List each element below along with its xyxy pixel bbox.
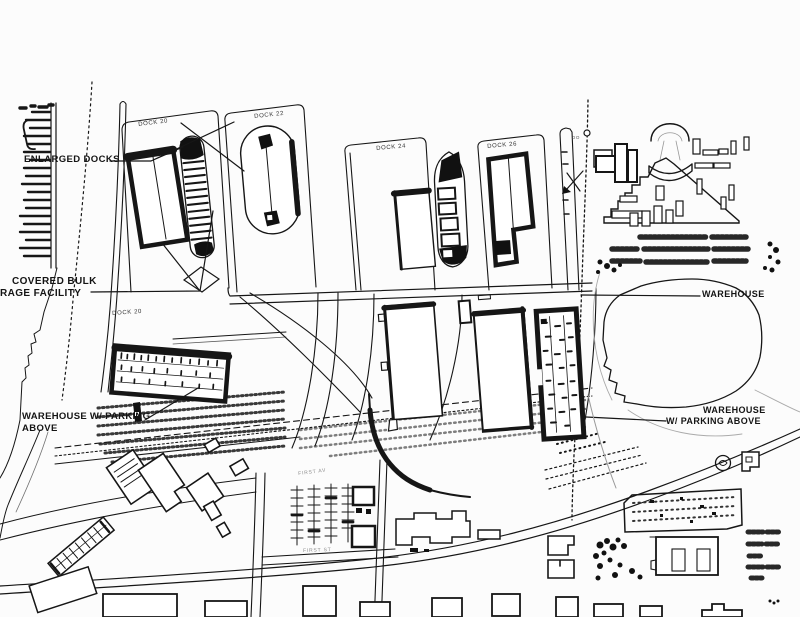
campus-trees: [593, 538, 643, 581]
label-covered-bulk-line2: RAGE FACILITY: [0, 289, 81, 299]
site-plan-drawing: [0, 0, 800, 617]
bottom-center-buildings: [396, 511, 500, 552]
label-warehouse-right: WAREHOUSE: [702, 290, 765, 299]
wharf-edge: [228, 283, 592, 304]
parking-warehouse-left: [111, 346, 228, 402]
dock-26-building: [488, 154, 536, 266]
label-warehouse-parking-right-line2: W/ PARKING ABOVE: [666, 417, 761, 426]
campus-tree-rows: [748, 532, 779, 578]
label-warehouse-parking-left-line1: WAREHOUSE W/ PARKING: [22, 412, 150, 422]
dock-24-building: [394, 189, 436, 270]
warehouse-3-parking: [532, 309, 584, 439]
site-plan: ENLARGED DOCKS COVERED BULK RAGE FACILIT…: [0, 0, 800, 617]
triangle-complex: [596, 124, 749, 226]
dock-24-slip: [345, 138, 436, 290]
dock-20-slip: [122, 111, 229, 292]
label-warehouse-parking-left-line2: ABOVE: [22, 424, 58, 434]
dock-26-slip: [478, 135, 552, 290]
label-warehouse-parking-right-line1: WAREHOUSE: [703, 406, 766, 415]
bottom-row-buildings: [103, 586, 780, 617]
label-dock-28-partial: DO: [572, 136, 580, 141]
label-covered-bulk-line1: COVERED BULK: [12, 277, 97, 287]
warehouse-1: [377, 302, 444, 431]
ship: [433, 151, 469, 267]
scattered-buildings: [693, 137, 749, 209]
round-site: [593, 272, 800, 436]
label-street-first: FIRST ST: [303, 548, 332, 554]
parking-lot-rows: [291, 484, 375, 547]
enlarged-dock-building: [128, 149, 188, 247]
waterfront-piers: [0, 103, 57, 538]
label-enlarged-docks: ENLARGED DOCKS: [24, 155, 120, 165]
dock-22-slip: [225, 105, 316, 292]
tree-rows: [612, 237, 750, 262]
